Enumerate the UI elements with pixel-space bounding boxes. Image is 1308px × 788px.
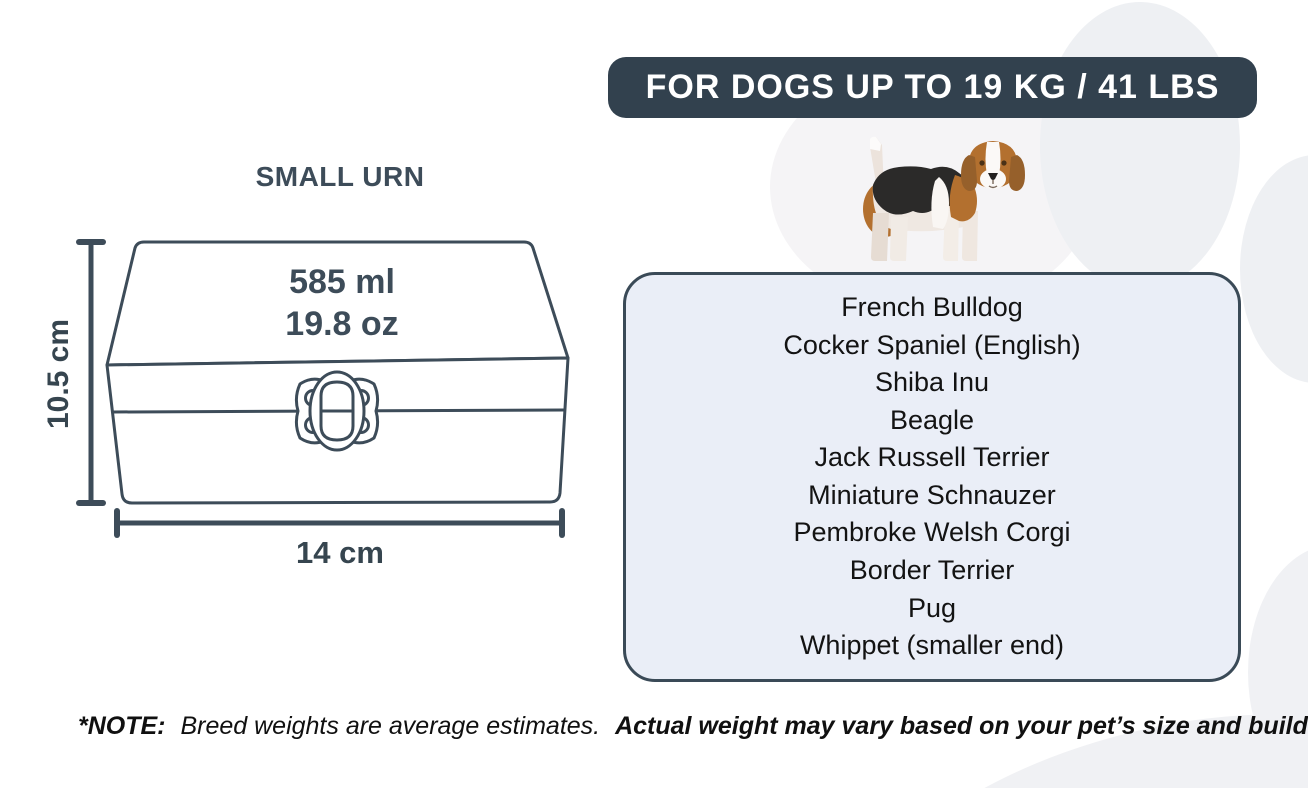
paw-print-toe-shape xyxy=(1240,155,1308,383)
infographic-canvas: FOR DOGS UP TO 19 KG / 41 LBS SMALL URN … xyxy=(0,0,1308,788)
breed-list-item: French Bulldog xyxy=(646,293,1218,323)
footnote: *NOTE: Breed weights are average estimat… xyxy=(78,712,1258,741)
breed-list-item: Jack Russell Terrier xyxy=(646,443,1218,473)
footnote-body: Breed weights are average estimates. xyxy=(180,712,600,740)
breed-list-item: Cocker Spaniel (English) xyxy=(646,331,1218,361)
paw-print-toe-shape xyxy=(1040,2,1240,290)
footnote-emphasis: Actual weight may vary based on your pet… xyxy=(615,712,1308,740)
weight-capacity-label: FOR DOGS UP TO 19 KG / 41 LBS xyxy=(646,68,1220,107)
footnote-prefix: *NOTE: xyxy=(78,712,166,740)
breed-list-item: Pug xyxy=(646,594,1218,624)
urn-capacity-oz: 19.8 oz xyxy=(232,305,452,344)
breed-list-item: Beagle xyxy=(646,406,1218,436)
breed-list-item: Border Terrier xyxy=(646,556,1218,586)
breed-list-item: Miniature Schnauzer xyxy=(646,481,1218,511)
urn-size-title: SMALL URN xyxy=(210,161,470,193)
breed-list-item: Shiba Inu xyxy=(646,368,1218,398)
weight-capacity-banner: FOR DOGS UP TO 19 KG / 41 LBS xyxy=(608,57,1257,118)
urn-capacity-ml: 585 ml xyxy=(232,263,452,302)
urn-height-dimension-label: 10.5 cm xyxy=(42,274,78,474)
breed-list-item: Whippet (smaller end) xyxy=(646,631,1218,661)
beagle-illustration xyxy=(848,133,1044,268)
urn-width-dimension-label: 14 cm xyxy=(240,535,440,571)
breed-list-item: Pembroke Welsh Corgi xyxy=(646,518,1218,548)
breed-list-box: French Bulldog Cocker Spaniel (English) … xyxy=(623,272,1241,682)
